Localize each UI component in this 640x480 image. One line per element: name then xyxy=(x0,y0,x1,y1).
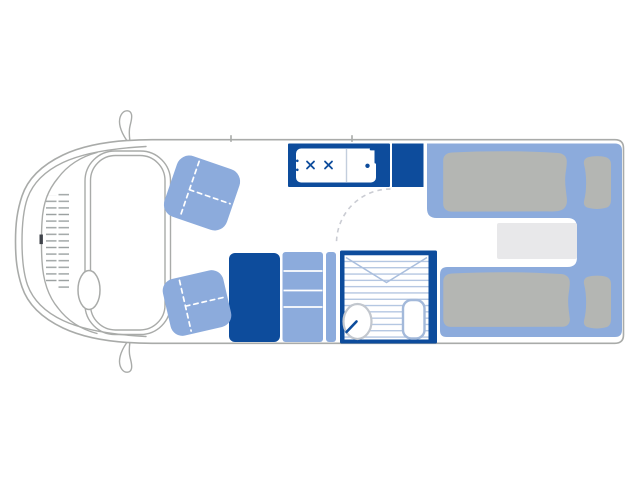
grille-vent-left xyxy=(46,196,57,286)
cabinet-side-strip xyxy=(326,252,336,342)
hob-edge-dot xyxy=(296,169,299,172)
bathroom-door-swing-arc xyxy=(337,189,391,243)
steering-wheel xyxy=(78,271,100,310)
cabinet xyxy=(283,252,337,342)
floorplan-image xyxy=(0,0,640,480)
mattress-bottom xyxy=(443,272,570,327)
side-mirror-top-icon xyxy=(119,111,131,140)
floorplan-svg xyxy=(0,0,640,480)
rear-beds xyxy=(427,144,622,338)
wardrobe xyxy=(229,253,280,342)
bathroom xyxy=(337,189,438,344)
side-mirror-bottom-icon xyxy=(119,343,131,372)
sink-drain-icon xyxy=(365,164,369,168)
mattress-top xyxy=(443,151,567,211)
cab-interior-outer xyxy=(85,151,171,335)
grille-vent-right xyxy=(59,191,70,291)
cabinet-body xyxy=(283,252,324,342)
bumper-notch xyxy=(40,235,43,245)
swivel-seat-bottom xyxy=(160,268,233,338)
kitchen-inset xyxy=(296,149,376,183)
step-between-beds xyxy=(497,223,577,259)
kitchen-unit xyxy=(288,144,424,188)
cab-interior-inner xyxy=(91,156,166,331)
hob-edge-dot xyxy=(296,160,299,163)
pillow-bottom xyxy=(584,276,611,329)
pillow-top xyxy=(584,156,611,209)
seat-cushion xyxy=(160,152,243,234)
toilet xyxy=(403,300,425,339)
worktop-section xyxy=(392,144,424,188)
swivel-seat-top xyxy=(160,152,243,234)
